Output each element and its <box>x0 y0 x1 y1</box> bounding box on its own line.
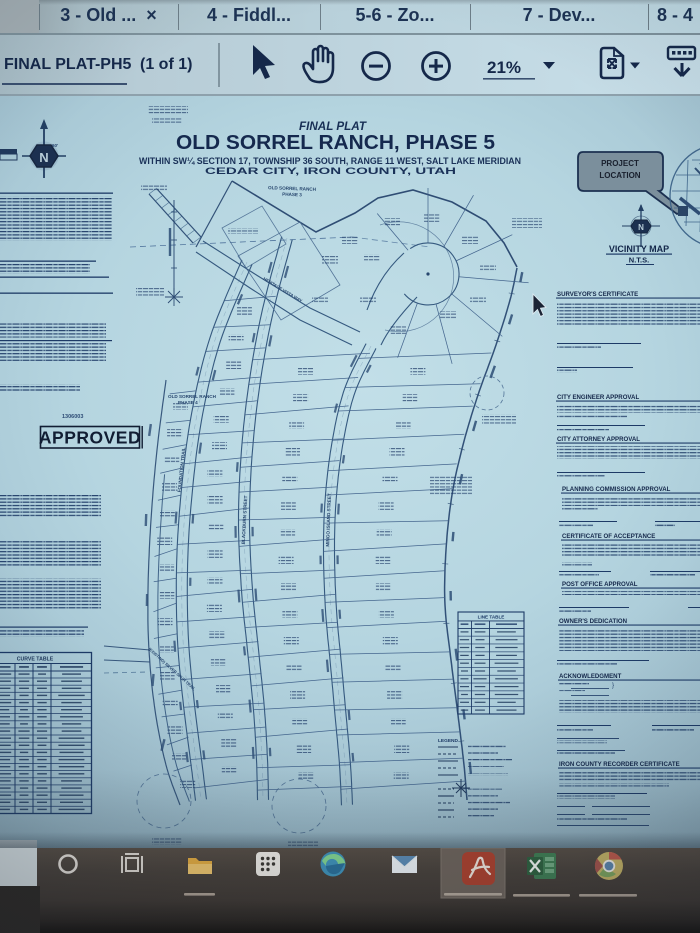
svg-text:1306003: 1306003 <box>62 414 83 420</box>
svg-text:PHASE 4: PHASE 4 <box>178 400 198 405</box>
svg-text:SURVEYOR'S CERTIFICATE: SURVEYOR'S CERTIFICATE <box>557 291 638 298</box>
svg-text:N: N <box>638 223 644 232</box>
svg-text:POST OFFICE APPROVAL: POST OFFICE APPROVAL <box>562 581 638 588</box>
svg-text:CITY ENGINEER APPROVAL: CITY ENGINEER APPROVAL <box>557 394 639 401</box>
svg-text:MINGO ISLAND STREET: MINGO ISLAND STREET <box>325 493 332 547</box>
svg-text:FOUNDATION TRAIL: FOUNDATION TRAIL <box>177 447 187 493</box>
svg-text:OLD SORREL RANCH: OLD SORREL RANCH <box>168 394 217 399</box>
svg-text:PROJECT: PROJECT <box>601 159 639 168</box>
svg-text:N.T.S.: N.T.S. <box>629 256 649 265</box>
svg-text:OWNER'S DEDICATION: OWNER'S DEDICATION <box>559 618 627 625</box>
svg-text:CURVE TABLE: CURVE TABLE <box>17 657 54 663</box>
svg-text:PLANNING COMMISSION APPROVAL: PLANNING COMMISSION APPROVAL <box>562 486 671 493</box>
svg-text:LOCATION: LOCATION <box>599 171 640 180</box>
svg-text:CEDAR CITY, IRON COUNTY, UTAH: CEDAR CITY, IRON COUNTY, UTAH <box>205 165 456 176</box>
svg-text:FINAL PLAT: FINAL PLAT <box>299 119 368 133</box>
svg-text:60': 60' <box>52 143 58 148</box>
svg-text:CERTIFICATE OF ACCEPTANCE: CERTIFICATE OF ACCEPTANCE <box>562 533 655 540</box>
svg-text:OLD SORREL RANCH: OLD SORREL RANCH <box>268 185 317 192</box>
svg-text:LINE TABLE: LINE TABLE <box>478 615 505 620</box>
svg-text:VICINITY MAP: VICINITY MAP <box>609 244 669 254</box>
svg-text:APPROVED: APPROVED <box>39 428 141 448</box>
svg-text:PHASE 3: PHASE 3 <box>282 192 302 198</box>
svg-text:CITY ATTORNEY APPROVAL: CITY ATTORNEY APPROVAL <box>557 436 640 443</box>
svg-text:OLD SORREL RANCH, PHASE 5: OLD SORREL RANCH, PHASE 5 <box>176 132 495 154</box>
svg-text:21%: 21% <box>487 58 521 77</box>
svg-text:N: N <box>39 150 48 165</box>
svg-text:LEGEND: LEGEND <box>438 738 459 744</box>
svg-text:ACKNOWLEDGMENT: ACKNOWLEDGMENT <box>559 673 622 680</box>
svg-text:IRON COUNTY RECORDER CERTIFICA: IRON COUNTY RECORDER CERTIFICATE <box>559 761 680 768</box>
svg-text:}: } <box>612 683 614 689</box>
